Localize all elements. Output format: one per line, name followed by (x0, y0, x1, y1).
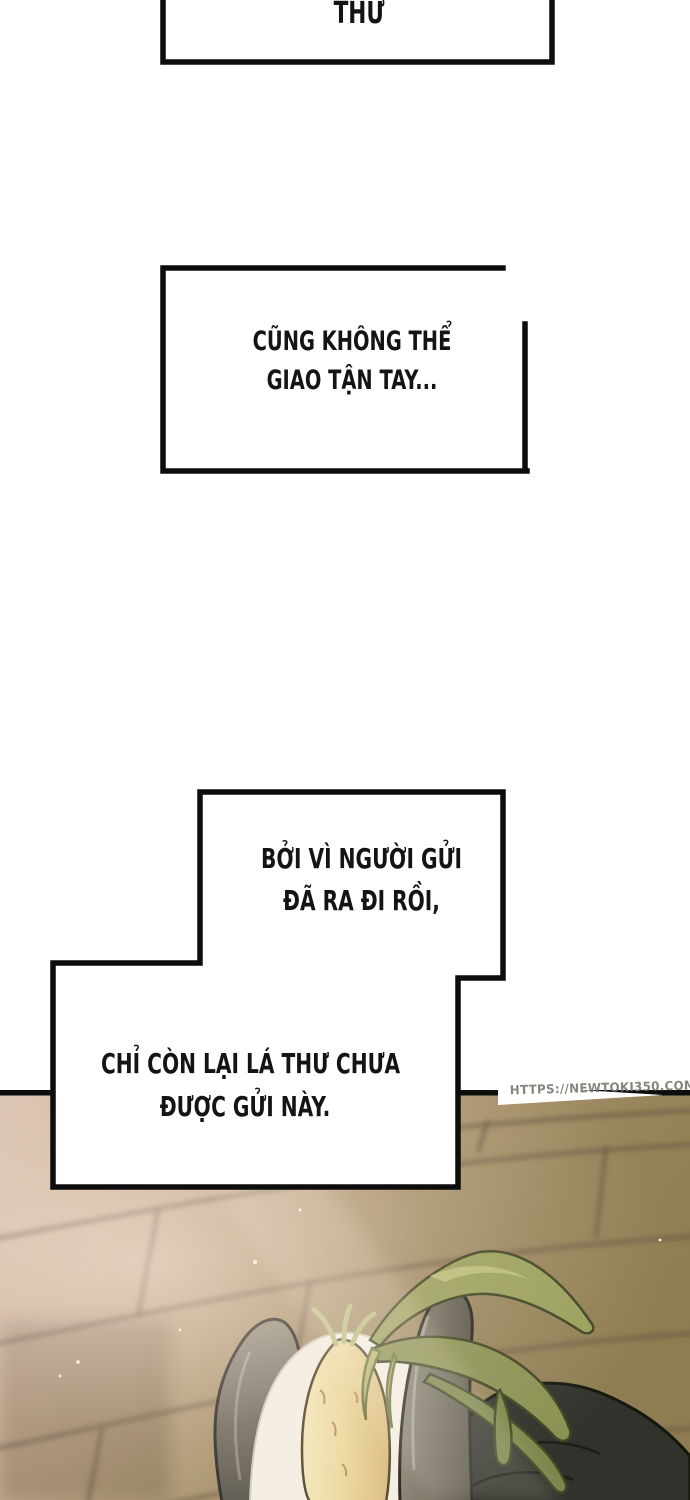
narration-line: CHỈ CÒN LẠI LÁ THƯ CHƯA (101, 1042, 389, 1085)
narration-text-1: THƯ (218, 0, 500, 36)
narration-line: GIAO TẬN TAY... (221, 361, 483, 400)
floor-panel-artwork (0, 1090, 690, 1500)
narration-text-3: BỞI VÌ NGƯỜI GỬI ĐÃ RA ĐI RỒI, (252, 838, 470, 922)
narration-line: CŨNG KHÔNG THỂ (221, 322, 483, 361)
narration-line: BỞI VÌ NGƯỜI GỬI (252, 838, 470, 880)
narration-line: ĐÃ RA ĐI RỒI, (252, 880, 470, 922)
narration-text-2: CŨNG KHÔNG THỂ GIAO TẬN TAY... (221, 322, 483, 400)
narration-line: ĐƯỢC GỬI NÀY. (101, 1085, 389, 1128)
narration-text-4: CHỈ CÒN LẠI LÁ THƯ CHƯA ĐƯỢC GỬI NÀY. (101, 1042, 389, 1128)
light-haze (0, 1094, 690, 1500)
comic-page[interactable]: HTTPS://NEWTOKI350.COM THƯ CŨNG KHÔNG TH… (0, 0, 690, 1500)
narration-line: THƯ (218, 0, 500, 36)
